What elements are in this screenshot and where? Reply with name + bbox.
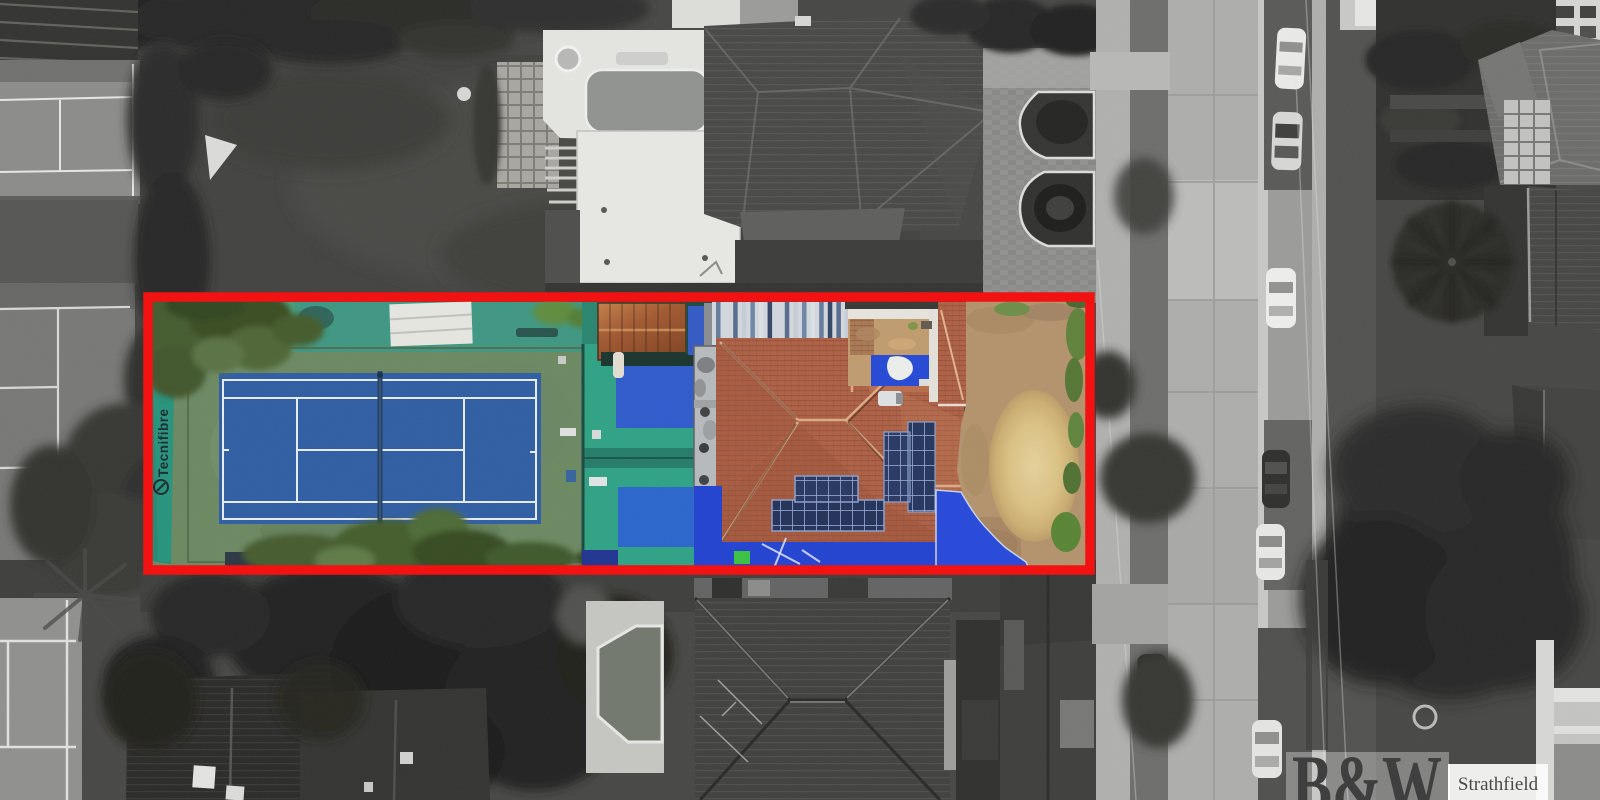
svg-text:Strathfield: Strathfield	[1458, 774, 1539, 795]
svg-text:B&W: B&W	[1292, 737, 1442, 800]
